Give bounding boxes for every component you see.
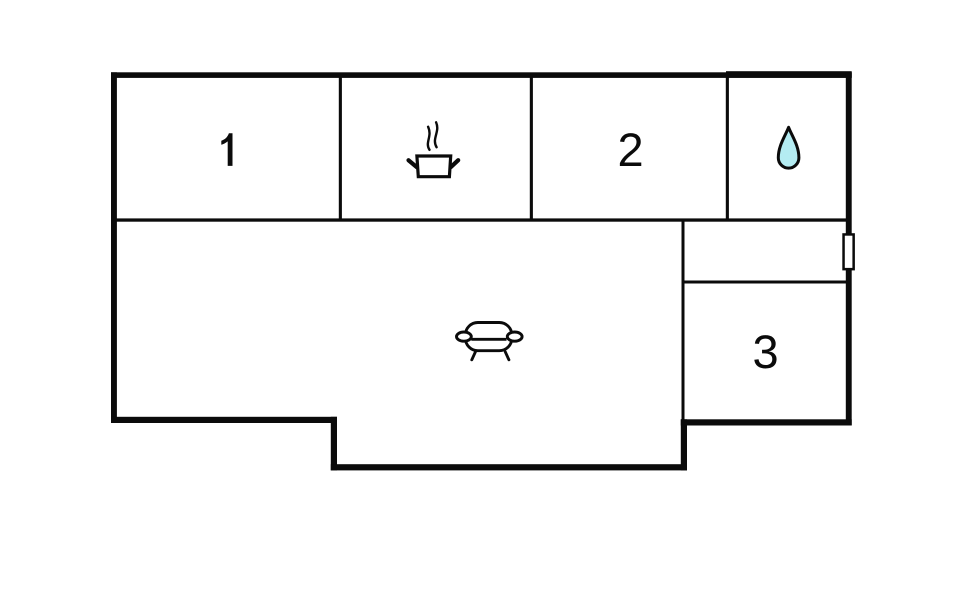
svg-text:2: 2 [618,123,644,176]
svg-text:3: 3 [753,325,779,378]
